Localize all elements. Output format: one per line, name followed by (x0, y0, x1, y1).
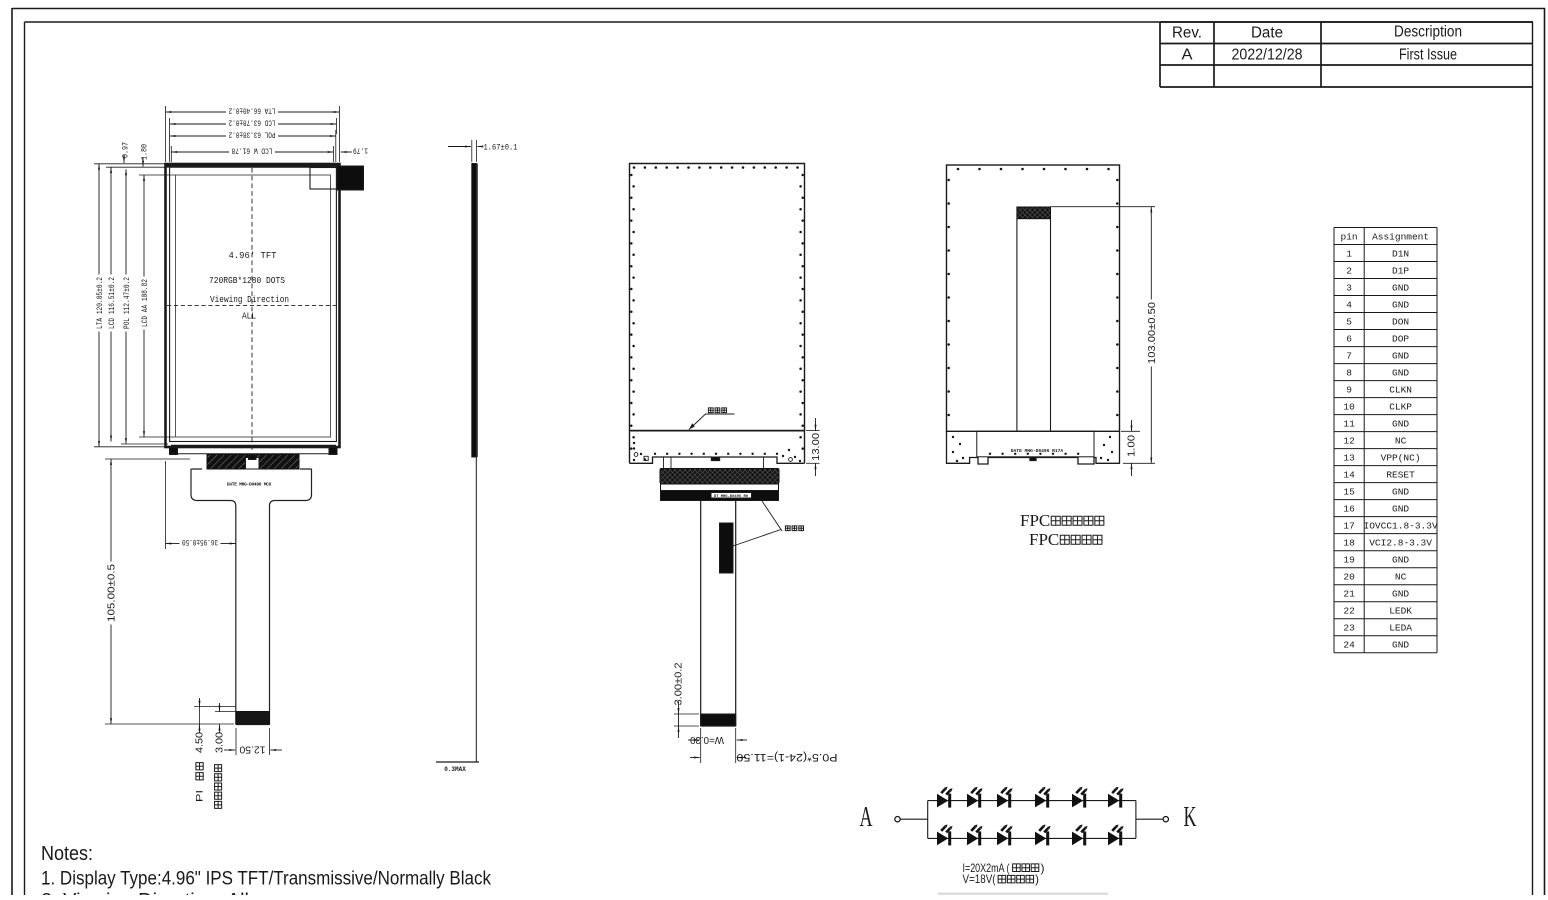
svg-text:D1P: D1P (1392, 266, 1409, 277)
svg-text:24: 24 (1343, 640, 1355, 651)
svg-text:First Issue: First Issue (1399, 47, 1457, 64)
svg-text:0.97: 0.97 (120, 142, 130, 158)
svg-text:17: 17 (1343, 521, 1354, 532)
svg-text:DOP: DOP (1392, 334, 1409, 345)
svg-text:PI: PI (195, 790, 206, 802)
svg-text:13.00: 13.00 (810, 433, 822, 461)
svg-text:RESET: RESET (1386, 470, 1415, 481)
svg-text:LTA 66.40±0.2: LTA 66.40±0.2 (229, 106, 276, 116)
svg-text:A: A (1182, 47, 1194, 64)
svg-text:Viewing Direction: Viewing Direction (210, 295, 289, 305)
svg-text:1.80: 1.80 (139, 144, 149, 160)
svg-text:103.00±0.50: 103.00±0.50 (1146, 302, 1158, 364)
svg-text:4.50: 4.50 (195, 732, 206, 753)
svg-text:2022/12/28: 2022/12/28 (1232, 47, 1303, 64)
svg-text:FPC: FPC (1029, 530, 1059, 549)
svg-text:14: 14 (1343, 470, 1355, 481)
svg-text:36.95±0.50: 36.95±0.50 (182, 537, 218, 546)
svg-text:Description: Description (1394, 24, 1462, 41)
svg-text:POL 112.47±0.2: POL 112.47±0.2 (122, 277, 132, 329)
svg-text:105.00±0.5: 105.00±0.5 (106, 564, 118, 622)
svg-text:3.00±0.2: 3.00±0.2 (674, 662, 685, 705)
svg-text:11: 11 (1343, 419, 1355, 430)
svg-text:6: 6 (1346, 334, 1352, 345)
svg-text:pin: pin (1341, 232, 1358, 243)
svg-text:GND: GND (1392, 300, 1409, 311)
svg-text:15: 15 (1343, 487, 1355, 498)
svg-text:VCI2.8-3.3V: VCI2.8-3.3V (1369, 538, 1432, 549)
svg-text:4: 4 (1346, 300, 1352, 311)
svg-text:GND: GND (1392, 504, 1409, 515)
svg-text:DATE MHG-D0496 R17A: DATE MHG-D0496 R17A (1011, 448, 1064, 454)
svg-text:21: 21 (1343, 589, 1355, 600)
svg-text:1.00: 1.00 (1126, 435, 1138, 457)
svg-text:10: 10 (1343, 402, 1355, 413)
svg-text:20: 20 (1343, 572, 1355, 583)
svg-text:7: 7 (1346, 351, 1352, 362)
svg-text:1: 1 (1346, 249, 1352, 260)
svg-text:GND: GND (1392, 368, 1409, 379)
svg-text:12.50: 12.50 (239, 744, 265, 755)
svg-text:Assignment: Assignment (1372, 232, 1429, 243)
svg-text:3: 3 (1346, 283, 1352, 294)
svg-text:720RGB*1280 DOTS: 720RGB*1280 DOTS (209, 276, 285, 286)
svg-text:18: 18 (1343, 538, 1355, 549)
svg-text:DATE MHG-D0496 MCU: DATE MHG-D0496 MCU (227, 482, 272, 488)
svg-text:VPP(NC): VPP(NC) (1381, 453, 1421, 464)
svg-text:LCD W 61.78: LCD W 61.78 (232, 146, 273, 156)
svg-text:8: 8 (1346, 368, 1352, 379)
svg-text:K: K (1184, 801, 1197, 833)
svg-text:IOVCC1.8-3.3V: IOVCC1.8-3.3V (1364, 521, 1438, 532)
svg-text:CLKP: CLKP (1389, 402, 1412, 413)
svg-text:13: 13 (1343, 453, 1355, 464)
svg-text:1. Display Type:4.96" IPS TFT/: 1. Display Type:4.96" IPS TFT/Transmissi… (41, 868, 491, 890)
svg-text:LCD 63.78±0.2: LCD 63.78±0.2 (229, 118, 276, 128)
svg-text:GND: GND (1392, 419, 1409, 430)
svg-text:P0.5*(24-1)=11.50: P0.5*(24-1)=11.50 (737, 751, 838, 763)
svg-text:D1N: D1N (1392, 249, 1409, 260)
svg-text:NC: NC (1395, 436, 1407, 447)
svg-text:22: 22 (1343, 606, 1355, 617)
svg-text:16: 16 (1343, 504, 1355, 515)
svg-text:POL 63.38±0.2: POL 63.38±0.2 (229, 130, 276, 140)
svg-text:2. Viewing Direction: All: 2. Viewing Direction: All (41, 890, 249, 896)
svg-text:DON: DON (1392, 317, 1409, 328)
svg-text:LEDK: LEDK (1389, 606, 1412, 617)
svg-text:GND: GND (1392, 487, 1409, 498)
svg-text:9: 9 (1346, 385, 1352, 396)
svg-text:Notes:: Notes: (41, 843, 93, 865)
svg-text:): ) (1041, 861, 1045, 875)
svg-text:5: 5 (1346, 317, 1352, 328)
svg-text:W=0.30: W=0.30 (690, 734, 724, 745)
svg-text:LCD AA 108.82: LCD AA 108.82 (140, 279, 150, 327)
svg-text:ALL: ALL (242, 312, 256, 322)
svg-text:Rev.: Rev. (1172, 25, 1202, 42)
svg-text:GND: GND (1392, 640, 1409, 651)
svg-text:4.96' TFT: 4.96' TFT (229, 251, 277, 261)
svg-text:GND: GND (1392, 283, 1409, 294)
svg-text:12: 12 (1343, 436, 1355, 447)
svg-text:GND: GND (1392, 555, 1409, 566)
svg-text:CLKN: CLKN (1389, 385, 1412, 396)
svg-text:DT MHG-D0496 R0: DT MHG-D0496 R0 (714, 495, 749, 499)
svg-text:LEDA: LEDA (1389, 623, 1412, 634)
svg-text:NC: NC (1395, 572, 1407, 583)
svg-text:2: 2 (1346, 266, 1352, 277)
svg-text:0.3MAX: 0.3MAX (444, 766, 466, 773)
svg-text:FPC: FPC (1020, 511, 1050, 530)
svg-text:LTA 120.05±0.2: LTA 120.05±0.2 (95, 277, 105, 329)
svg-text:1.67±0.1: 1.67±0.1 (484, 144, 518, 153)
svg-text:LCD 116.51±0.2: LCD 116.51±0.2 (107, 277, 117, 329)
svg-text:1.79: 1.79 (353, 146, 368, 156)
svg-text:Date: Date (1251, 25, 1283, 42)
svg-text:23: 23 (1343, 623, 1355, 634)
svg-text:19: 19 (1343, 555, 1355, 566)
svg-text:V=18V(: V=18V( (963, 872, 996, 886)
svg-text:GND: GND (1392, 589, 1409, 600)
svg-text:): ) (1035, 872, 1039, 886)
svg-text:A: A (860, 801, 873, 833)
svg-text:GND: GND (1392, 351, 1409, 362)
